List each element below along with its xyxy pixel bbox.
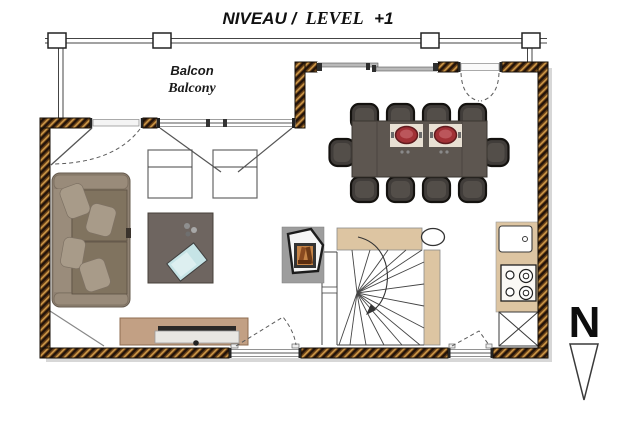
burner (506, 288, 514, 296)
door-leaf (51, 128, 92, 165)
sliding-window (317, 62, 438, 72)
burner (520, 270, 533, 283)
wall-left (40, 118, 50, 358)
cooktop (501, 265, 536, 301)
column (422, 229, 445, 246)
sofa (52, 173, 131, 307)
tv-cabinet (120, 318, 248, 346)
title-suffix: +1 (374, 9, 393, 28)
sofa-armrest (54, 175, 128, 189)
page-title: NIVEAU / LEVEL +1 (223, 8, 394, 28)
title-fr: NIVEAU / (223, 9, 299, 28)
pebble (191, 227, 197, 233)
door-swing (481, 73, 499, 101)
dining-chair (423, 177, 450, 202)
stair-treads (339, 250, 424, 345)
dining-chair (459, 177, 486, 202)
corner-line (50, 311, 104, 346)
north-indicator: N (569, 298, 600, 400)
wall-right (538, 62, 548, 358)
balcony-label-en: Balcony (167, 81, 216, 96)
pebble (184, 223, 190, 229)
appliance-cabinet (499, 312, 538, 346)
door-swing (53, 129, 140, 164)
sink-drain (523, 237, 528, 242)
title-en: LEVEL (305, 8, 364, 28)
dining-chair (351, 177, 378, 202)
staircase (322, 237, 424, 345)
balcony-label-fr: Balcon (170, 63, 213, 78)
wood-stove (282, 227, 324, 283)
floor-plan: NIVEAU / LEVEL +1 Balcon Balcony (0, 0, 640, 427)
north-arrow-icon (570, 344, 598, 400)
balcony-labels: Balcon Balcony (167, 63, 216, 96)
svg-text:NIVEAU / LEVEL +1: NIVEAU / LEVEL +1 (223, 8, 394, 28)
tv-stand (193, 340, 199, 346)
dining-set (330, 104, 509, 202)
entry-door (458, 62, 502, 101)
wall-top-left (40, 118, 90, 128)
handrail (322, 287, 337, 293)
window-swing (452, 331, 489, 346)
dining-chair (330, 139, 355, 166)
kitchen (496, 222, 538, 346)
railing-post (48, 33, 66, 48)
railing-post (153, 33, 171, 48)
armchair-1 (148, 150, 192, 198)
sliding-panel (376, 67, 437, 71)
railing-post (522, 33, 540, 48)
pebble (186, 232, 191, 237)
burner (520, 287, 533, 300)
burner (506, 271, 514, 279)
bottom-window-right (448, 331, 493, 358)
railing-post (421, 33, 439, 48)
wall-bottom (40, 348, 229, 358)
wall-top-right (305, 62, 317, 72)
north-label: N (569, 298, 600, 347)
door-swing (461, 73, 479, 101)
wall-connector (295, 62, 305, 128)
coffee-table (148, 213, 213, 283)
dining-chair (387, 177, 414, 202)
sofa-armrest (54, 293, 128, 305)
armchair-2 (213, 150, 257, 198)
